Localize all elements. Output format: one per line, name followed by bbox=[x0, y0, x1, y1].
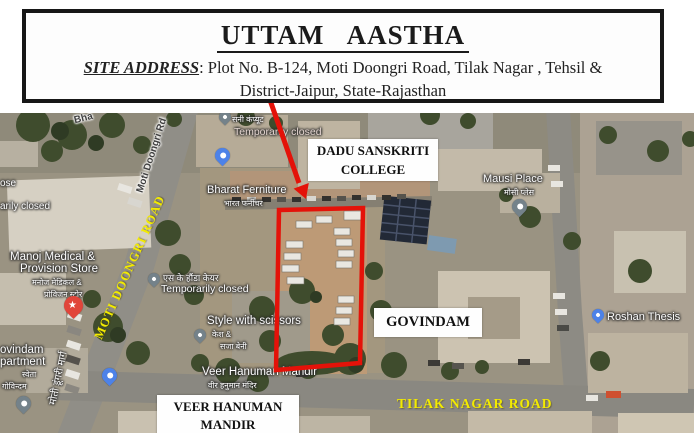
site-address: SITE ADDRESS: Plot No. B-124, Moti Doong… bbox=[26, 56, 660, 102]
poi-label-style-hindi1: केश & bbox=[212, 329, 231, 340]
poi-label-manoj-line2: Provision Store bbox=[20, 263, 98, 275]
poi-label-style-with-scissors: Style with scissors bbox=[207, 315, 301, 327]
poi-label-govindam-apartment2: partment bbox=[0, 356, 45, 368]
poi-label-govindam-apt-hindi1: स्वेता bbox=[22, 369, 36, 380]
poi-label-roshan-thesis: Roshan Thesis bbox=[607, 311, 680, 323]
site-location-page: { "header": { "title": "UTTAM AASTHA", "… bbox=[0, 0, 700, 433]
poi-label-govindam-apt-hindi2: गोविन्दम bbox=[2, 381, 27, 392]
poi-label-govindam-apartment1: ovindam bbox=[0, 344, 43, 356]
site-address-label: SITE ADDRESS bbox=[84, 58, 199, 77]
satellite-map: Bha Moti Doongri Rd सनी कंप्यूट Temporar… bbox=[0, 113, 694, 433]
annotation-box-dadu-college: DADU SANSKRITI COLLEGE bbox=[308, 139, 438, 181]
poi-label-style-hindi2: सजा बेनी bbox=[220, 341, 247, 352]
label-fragment-ose: ose bbox=[0, 178, 16, 189]
poi-label-bharat-furniture-hindi: भारत फर्नीचर bbox=[224, 198, 263, 209]
annotation-box-govindam: GOVINDAM bbox=[374, 308, 482, 337]
poi-label-mausi-place-hindi: मौसी प्लेस bbox=[504, 187, 534, 198]
annotation-box-veer-hanuman-mandir: VEER HANUMAN MANDIR bbox=[157, 395, 299, 433]
poi-label-bharat-furniture: Bharat Ferniture bbox=[207, 184, 286, 196]
site-address-line2: District-Jaipur, State-Rajasthan bbox=[240, 81, 446, 100]
poi-label-sunny-computer: सनी कंप्यूट bbox=[232, 114, 263, 125]
site-address-line1: : Plot No. B-124, Moti Doongri Road, Til… bbox=[199, 58, 602, 77]
poi-label-veer-hanuman-hindi: वीर हनुमान मंदिर bbox=[208, 380, 257, 391]
poi-label-mausi-place: Mausi Place bbox=[483, 173, 543, 185]
status-temporarily-closed-mid: Temporarily closed bbox=[161, 283, 249, 295]
poi-label-manoj-line1: Manoj Medical & bbox=[10, 251, 95, 263]
label-fragment-arily-closed: arily closed bbox=[0, 201, 50, 212]
page-title: UTTAM AASTHA bbox=[217, 20, 469, 53]
road-label-tilak-nagar-road: TILAK NAGAR ROAD bbox=[397, 396, 553, 412]
poi-label-manoj-hindi1: मनोज मेडिकल & bbox=[32, 277, 82, 288]
status-temporarily-closed-top: Temporarily closed bbox=[234, 126, 322, 138]
title-box: UTTAM AASTHA SITE ADDRESS: Plot No. B-12… bbox=[22, 9, 664, 103]
poi-label-veer-hanuman: Veer Hanuman Mandir bbox=[202, 366, 317, 378]
